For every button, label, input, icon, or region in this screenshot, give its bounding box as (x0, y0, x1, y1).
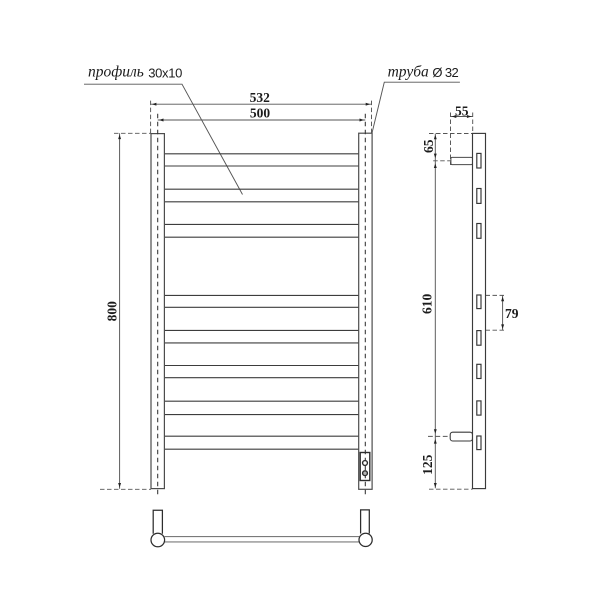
svg-text:55: 55 (455, 103, 469, 118)
svg-text:800: 800 (104, 301, 119, 322)
svg-text:610: 610 (420, 294, 435, 315)
svg-text:532: 532 (250, 90, 271, 105)
svg-text:125: 125 (420, 454, 435, 475)
svg-text:профиль: профиль (88, 64, 144, 81)
svg-text:Ø 32: Ø 32 (432, 65, 458, 80)
svg-text:65: 65 (421, 139, 436, 153)
svg-text:79: 79 (505, 306, 519, 321)
svg-text:труба: труба (388, 64, 429, 81)
svg-text:500: 500 (250, 106, 271, 121)
svg-text:30x10: 30x10 (148, 65, 182, 80)
